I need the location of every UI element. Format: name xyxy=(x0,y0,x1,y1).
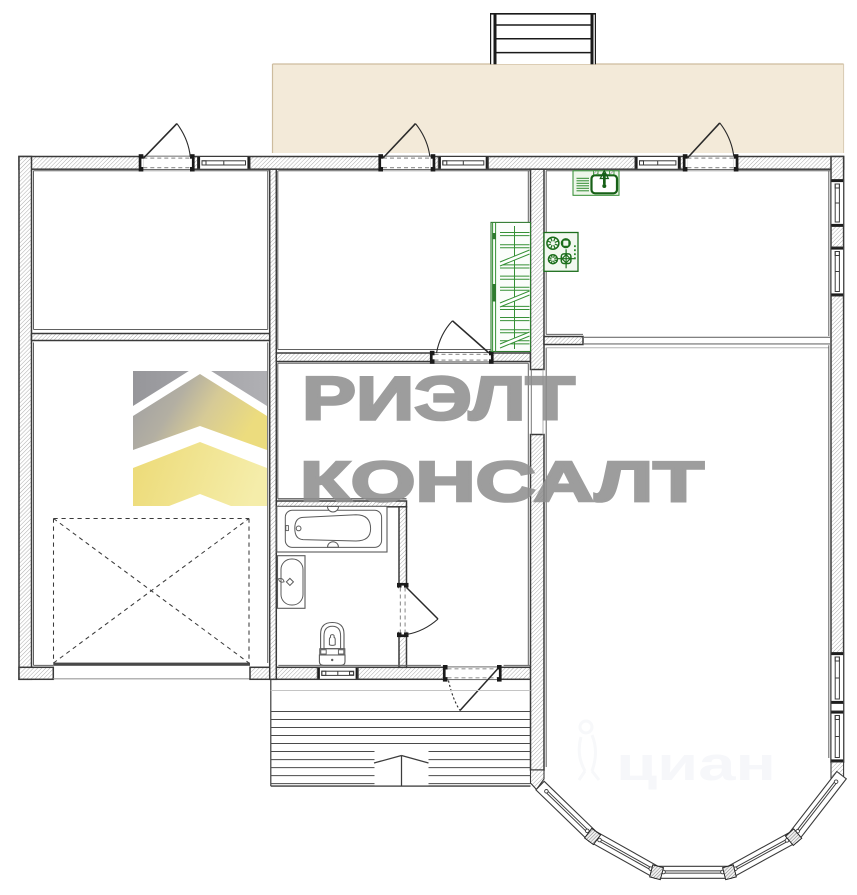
svg-text:циан: циан xyxy=(616,737,776,790)
svg-text:КОНСАЛТ: КОНСАЛТ xyxy=(300,450,704,514)
svg-text:РИЭЛТ: РИЭЛТ xyxy=(302,365,575,434)
